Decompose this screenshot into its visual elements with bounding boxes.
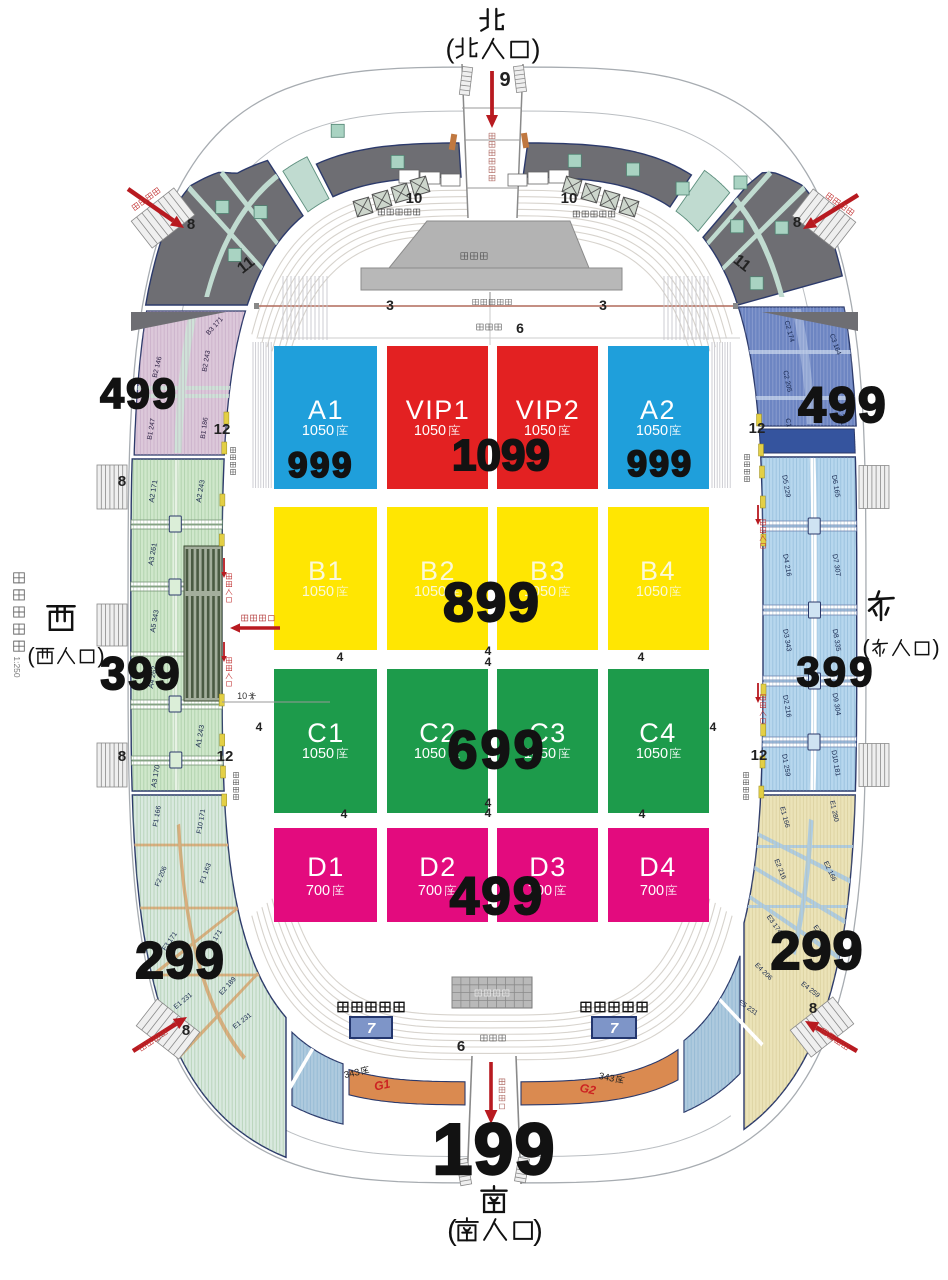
- svg-text:1050: 1050: [302, 423, 334, 439]
- svg-text:700: 700: [640, 883, 664, 899]
- svg-text:C1: C1: [307, 718, 345, 748]
- svg-text:8: 8: [187, 216, 195, 233]
- svg-text:999: 999: [627, 443, 693, 484]
- svg-text:VIP1: VIP1: [406, 395, 471, 425]
- svg-text:(: (: [447, 1215, 457, 1247]
- svg-text:1050: 1050: [636, 584, 668, 600]
- svg-text:499: 499: [450, 867, 544, 926]
- svg-text:8: 8: [809, 1000, 817, 1017]
- svg-text:1050: 1050: [414, 584, 446, 600]
- svg-text:299: 299: [135, 932, 225, 990]
- svg-text:8: 8: [793, 214, 801, 231]
- svg-text:1050: 1050: [636, 746, 668, 762]
- svg-text:199: 199: [432, 1110, 555, 1190]
- svg-text:10: 10: [406, 190, 423, 207]
- svg-text:699: 699: [447, 720, 546, 780]
- svg-text:3: 3: [599, 297, 607, 313]
- svg-text:1050: 1050: [302, 584, 334, 600]
- svg-text:(: (: [862, 635, 870, 660]
- svg-text:A1: A1: [308, 395, 344, 425]
- svg-text:): ): [533, 1215, 543, 1247]
- svg-text:(: (: [27, 643, 35, 668]
- svg-text:(: (: [446, 34, 455, 64]
- svg-text:4: 4: [710, 720, 717, 734]
- svg-text:999: 999: [288, 446, 354, 485]
- svg-text:4: 4: [337, 650, 344, 664]
- svg-text:4: 4: [341, 807, 348, 821]
- svg-text:4: 4: [485, 655, 492, 669]
- svg-text:4: 4: [485, 806, 492, 820]
- svg-text:499: 499: [100, 370, 178, 418]
- svg-text:12: 12: [217, 748, 234, 765]
- svg-text:1050: 1050: [414, 423, 446, 439]
- svg-text:3: 3: [386, 297, 394, 313]
- svg-text:C4: C4: [639, 718, 677, 748]
- svg-text:): ): [932, 635, 939, 660]
- svg-text:1050: 1050: [302, 746, 334, 762]
- svg-text:1:250: 1:250: [12, 656, 22, 678]
- svg-text:7: 7: [367, 1020, 376, 1037]
- svg-text:4: 4: [639, 807, 646, 821]
- svg-text:399: 399: [100, 648, 181, 699]
- svg-text:12: 12: [749, 420, 766, 437]
- svg-text:): ): [532, 34, 541, 64]
- svg-text:10: 10: [237, 691, 247, 701]
- svg-text:12: 12: [214, 421, 231, 438]
- svg-text:B1: B1: [308, 556, 344, 586]
- svg-text:8: 8: [118, 748, 126, 765]
- svg-text:D1: D1: [307, 852, 345, 882]
- svg-text:6: 6: [457, 1038, 465, 1055]
- svg-text:4: 4: [256, 720, 263, 734]
- svg-text:4: 4: [638, 650, 645, 664]
- svg-text:700: 700: [306, 883, 330, 899]
- svg-text:8: 8: [182, 1022, 190, 1039]
- svg-text:499: 499: [798, 377, 887, 433]
- svg-text:299: 299: [770, 921, 863, 981]
- svg-text:B4: B4: [640, 556, 676, 586]
- svg-text:9: 9: [499, 69, 510, 91]
- svg-text:VIP2: VIP2: [516, 395, 581, 425]
- svg-text:7: 7: [610, 1020, 619, 1037]
- svg-text:): ): [97, 643, 104, 668]
- svg-text:899: 899: [443, 571, 541, 633]
- svg-text:1099: 1099: [452, 431, 550, 480]
- svg-text:1050: 1050: [636, 423, 668, 439]
- svg-text:12: 12: [751, 747, 768, 764]
- svg-text:700: 700: [418, 883, 442, 899]
- svg-text:6: 6: [516, 320, 524, 336]
- svg-text:8: 8: [118, 473, 126, 490]
- svg-text:D4: D4: [639, 852, 677, 882]
- svg-text:A2: A2: [640, 395, 676, 425]
- svg-text:1050: 1050: [414, 746, 446, 762]
- svg-text:10: 10: [561, 190, 578, 207]
